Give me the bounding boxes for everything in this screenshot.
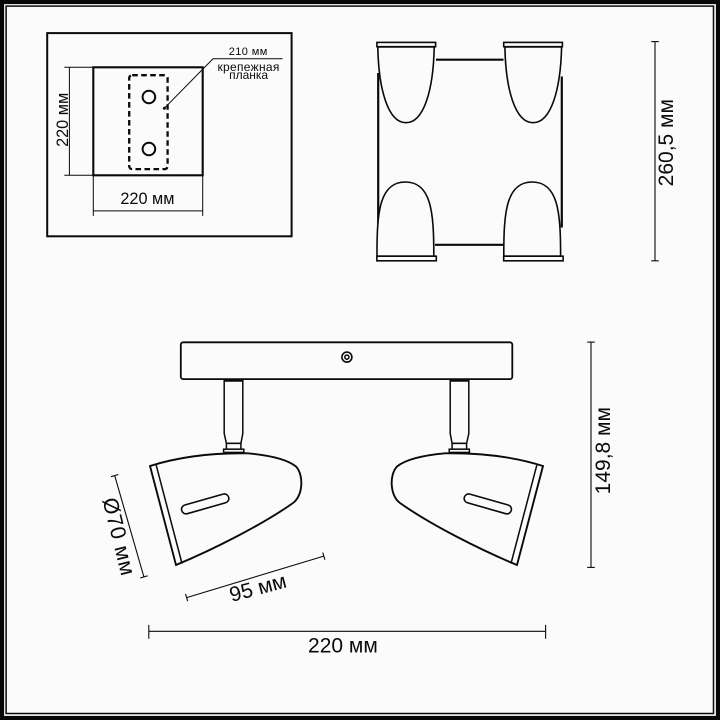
svg-text:149,8 мм: 149,8 мм [592,407,615,494]
svg-text:планка: планка [229,68,268,82]
svg-text:220 мм: 220 мм [308,634,378,657]
svg-text:220 мм: 220 мм [120,190,174,208]
svg-text:260,5 мм: 260,5 мм [655,99,678,186]
svg-text:220 мм: 220 мм [54,93,72,147]
svg-text:210 мм: 210 мм [229,46,268,58]
